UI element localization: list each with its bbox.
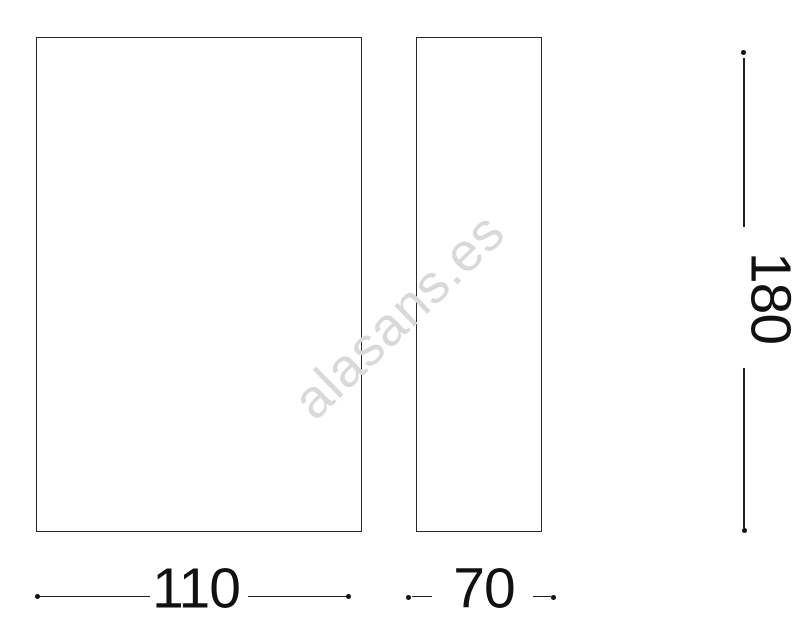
depth-dimension-line-right [533,596,551,598]
width-dimension-label: 110 [152,561,240,618]
front-view-outline [36,37,362,532]
depth-dimension-label: 70 [453,561,514,618]
depth-dimension-endpoint-dot-right [551,595,556,600]
width-dimension-line-left [40,596,150,598]
depth-dimension-line-left [412,596,432,598]
width-dimension-line-right [248,596,348,598]
height-dimension-endpoint-dot-bottom [742,528,747,533]
depth-dimension-endpoint-dot-left [406,595,411,600]
height-dimension-line-bottom [743,368,745,528]
height-dimension-label: 180 [742,252,798,344]
height-dimension-line-top [743,58,745,227]
width-dimension-endpoint-dot-right [346,594,351,599]
height-dimension-endpoint-dot-top [741,50,746,55]
